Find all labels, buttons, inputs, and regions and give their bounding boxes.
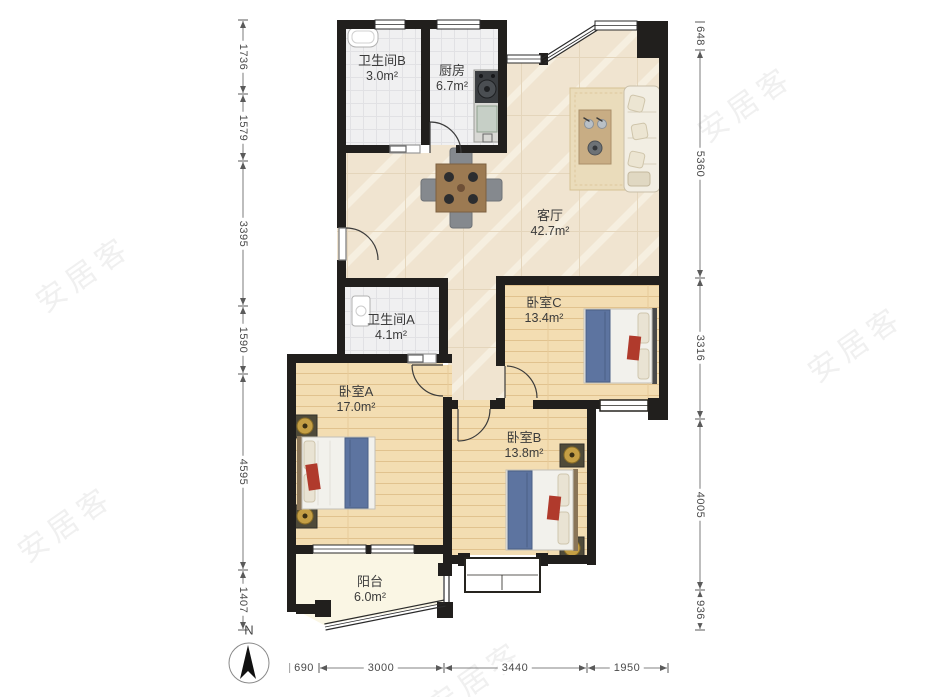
window [437,20,480,29]
red-throw [627,335,641,360]
sofa [624,86,660,192]
window [375,20,405,29]
kettle-lid [593,146,598,151]
bedroom-b-bay-window [465,558,540,592]
blanket [586,310,610,382]
washer [352,296,370,326]
bathroom-b-sliding-door [390,145,420,153]
pillow [638,349,649,379]
window [371,545,414,553]
blanket [345,438,368,508]
window [507,55,541,63]
north-label: N [244,623,253,638]
chair [450,210,472,228]
sink [477,106,497,132]
bathroom-a-sliding-door [408,354,436,363]
hallway-floor [496,366,505,398]
bedroom-c-floor [505,398,533,409]
bed-c [584,308,657,384]
blanket [508,471,532,549]
kitchen-counter [474,70,500,142]
bedroom-b-floor [458,400,490,409]
chair [484,179,502,201]
pillow [558,512,569,544]
window [313,545,366,553]
red-throw [547,495,561,520]
hallway-floor [448,278,496,402]
north-arrow [229,643,269,683]
window [600,400,648,411]
floor-plan-canvas [0,0,943,697]
floor-plan-page: 安居客 安居客 安居客 安居客 安居客 [0,0,943,697]
bedroom-a-floor [443,365,452,397]
